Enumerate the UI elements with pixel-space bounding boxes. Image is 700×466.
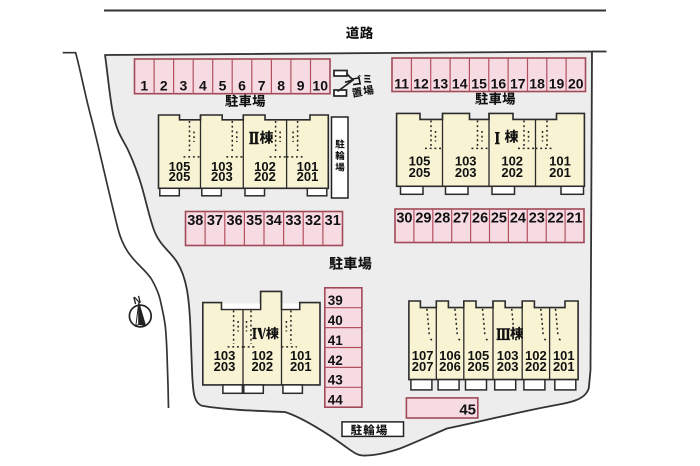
svg-text:24: 24	[510, 210, 526, 226]
svg-text:1: 1	[140, 78, 148, 94]
svg-text:202: 202	[254, 169, 276, 184]
svg-text:206: 206	[439, 359, 461, 374]
svg-text:19: 19	[549, 75, 565, 91]
svg-text:36: 36	[227, 213, 243, 229]
svg-text:6: 6	[238, 78, 246, 94]
svg-text:10: 10	[312, 78, 328, 94]
svg-text:202: 202	[525, 359, 547, 374]
svg-text:201: 201	[290, 359, 312, 374]
svg-text:202: 202	[501, 165, 523, 180]
svg-text:13: 13	[433, 75, 449, 91]
svg-text:207: 207	[412, 359, 434, 374]
svg-text:203: 203	[497, 359, 519, 374]
svg-text:16: 16	[491, 75, 507, 91]
svg-text:201: 201	[549, 165, 571, 180]
svg-text:37: 37	[207, 213, 223, 229]
svg-text:38: 38	[187, 213, 203, 229]
svg-text:203: 203	[455, 165, 477, 180]
svg-text:22: 22	[548, 210, 564, 226]
svg-text:203: 203	[214, 359, 236, 374]
svg-text:202: 202	[251, 359, 273, 374]
svg-text:205: 205	[409, 165, 431, 180]
svg-text:201: 201	[297, 169, 319, 184]
svg-text:17: 17	[510, 75, 526, 91]
svg-text:203: 203	[211, 169, 233, 184]
svg-text:4: 4	[199, 78, 207, 94]
svg-text:20: 20	[568, 75, 584, 91]
svg-text:28: 28	[434, 210, 450, 226]
svg-text:31: 31	[325, 213, 341, 229]
svg-text:27: 27	[453, 210, 469, 226]
svg-text:12: 12	[413, 75, 429, 91]
svg-text:5: 5	[219, 78, 227, 94]
svg-text:26: 26	[472, 210, 488, 226]
svg-text:11: 11	[394, 75, 409, 91]
svg-text:34: 34	[266, 213, 282, 229]
svg-text:30: 30	[396, 210, 412, 226]
svg-text:7: 7	[258, 78, 266, 94]
svg-text:2: 2	[160, 78, 168, 94]
svg-text:3: 3	[180, 78, 188, 94]
svg-text:205: 205	[169, 169, 191, 184]
svg-text:33: 33	[285, 213, 301, 229]
svg-text:41: 41	[328, 333, 344, 348]
svg-text:21: 21	[566, 210, 582, 226]
svg-text:18: 18	[529, 75, 545, 91]
svg-text:29: 29	[415, 210, 431, 226]
svg-text:32: 32	[305, 213, 321, 229]
svg-text:201: 201	[553, 359, 575, 374]
svg-text:9: 9	[297, 78, 305, 94]
svg-text:42: 42	[328, 353, 343, 368]
svg-text:35: 35	[246, 213, 262, 229]
svg-text:14: 14	[452, 75, 468, 91]
svg-text:15: 15	[471, 75, 487, 91]
svg-text:44: 44	[328, 393, 344, 408]
svg-text:45: 45	[459, 401, 476, 418]
svg-text:25: 25	[491, 210, 507, 226]
svg-text:23: 23	[529, 210, 545, 226]
svg-text:43: 43	[328, 373, 344, 388]
svg-text:205: 205	[468, 359, 490, 374]
svg-text:39: 39	[328, 293, 343, 308]
svg-text:8: 8	[277, 78, 285, 94]
svg-text:40: 40	[328, 313, 343, 328]
